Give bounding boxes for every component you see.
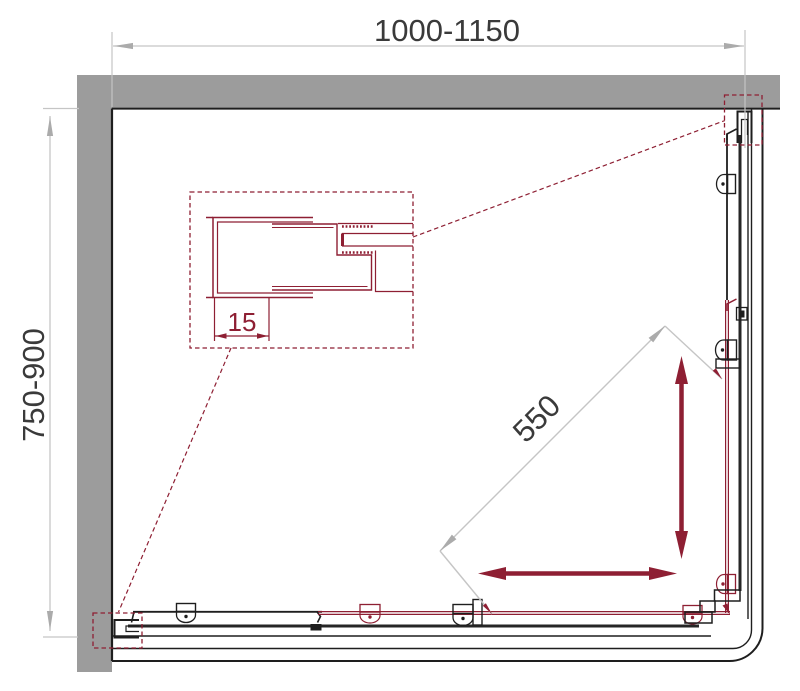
- right-rail-junction-block: [737, 308, 748, 321]
- shower-enclosure-diagram: 15 1000-1150 750-900 550: [0, 0, 800, 691]
- wall-profile-nubs: [206, 218, 213, 298]
- adjustment-dimension-label: 15: [228, 307, 257, 337]
- entry-tip-right-door: [713, 368, 722, 379]
- wall-top: [77, 75, 780, 107]
- width-dimension-label: 1000-1150: [374, 13, 520, 48]
- leader-line-to-top-right: [413, 121, 725, 238]
- vertical-arrow-head-up: [675, 356, 688, 384]
- dimension-depth: 750-900: [16, 109, 79, 638]
- bottom-rail-end-hook: [317, 612, 321, 623]
- horizontal-arrow-head-left: [478, 567, 506, 580]
- detail-callout: 15: [93, 95, 762, 648]
- slide-direction-arrows: [478, 356, 688, 580]
- vertical-slide-arrow: [675, 356, 688, 559]
- entry-arrow-upper: [649, 326, 665, 342]
- wall-left: [77, 75, 112, 672]
- sliding-doors: [318, 299, 737, 615]
- width-arrow-right: [724, 43, 744, 49]
- adjustment-arrow-right: [257, 333, 268, 338]
- bottom-rail-end-block: [311, 624, 322, 631]
- bottom-bracket-3: [453, 600, 482, 626]
- fixed-panels: [112, 112, 752, 638]
- tray-inner-edge: [112, 109, 752, 649]
- door-profile-right-edge: [376, 251, 414, 292]
- entry-arrow-lower: [440, 535, 456, 551]
- entry-dimension-label: 550: [506, 388, 567, 449]
- technical-drawing-canvas: 15 1000-1150 750-900 550: [0, 0, 800, 691]
- dimension-adjustment: 15: [215, 298, 270, 341]
- wall-profile-inner: [218, 222, 314, 293]
- right-rail-wall-hook: [727, 129, 737, 140]
- bottom-bracket-2: [360, 605, 380, 624]
- horizontal-slide-arrow: [478, 567, 677, 580]
- bottom-wall-channel-profile: [115, 620, 140, 638]
- width-arrow-left: [114, 43, 134, 49]
- depth-dimension-label: 750-900: [16, 328, 51, 442]
- bottom-bracket-1: [177, 604, 196, 623]
- vertical-arrow-head-down: [675, 531, 688, 559]
- depth-arrow-top: [47, 117, 53, 137]
- rollers-and-brackets: [177, 175, 748, 626]
- horizontal-arrow-head-right: [649, 567, 677, 580]
- tray-outer-edge: [112, 109, 763, 662]
- entry-tip-bottom-door: [483, 603, 492, 614]
- depth-arrow-bottom: [47, 611, 53, 631]
- right-bracket-2: [716, 340, 741, 368]
- walls: [77, 75, 780, 672]
- entry-dimension-line: [440, 326, 665, 551]
- profile-section-drawing: [206, 218, 413, 298]
- glass-panel-section: [342, 234, 413, 247]
- wall-profile-outer: [213, 218, 313, 298]
- leader-line-to-bottom-left: [119, 348, 232, 612]
- right-bracket-1: [717, 175, 736, 194]
- adjustment-arrow-left: [216, 333, 227, 338]
- door-profile-offsets: [272, 228, 368, 287]
- detail-inset-box: [190, 192, 413, 348]
